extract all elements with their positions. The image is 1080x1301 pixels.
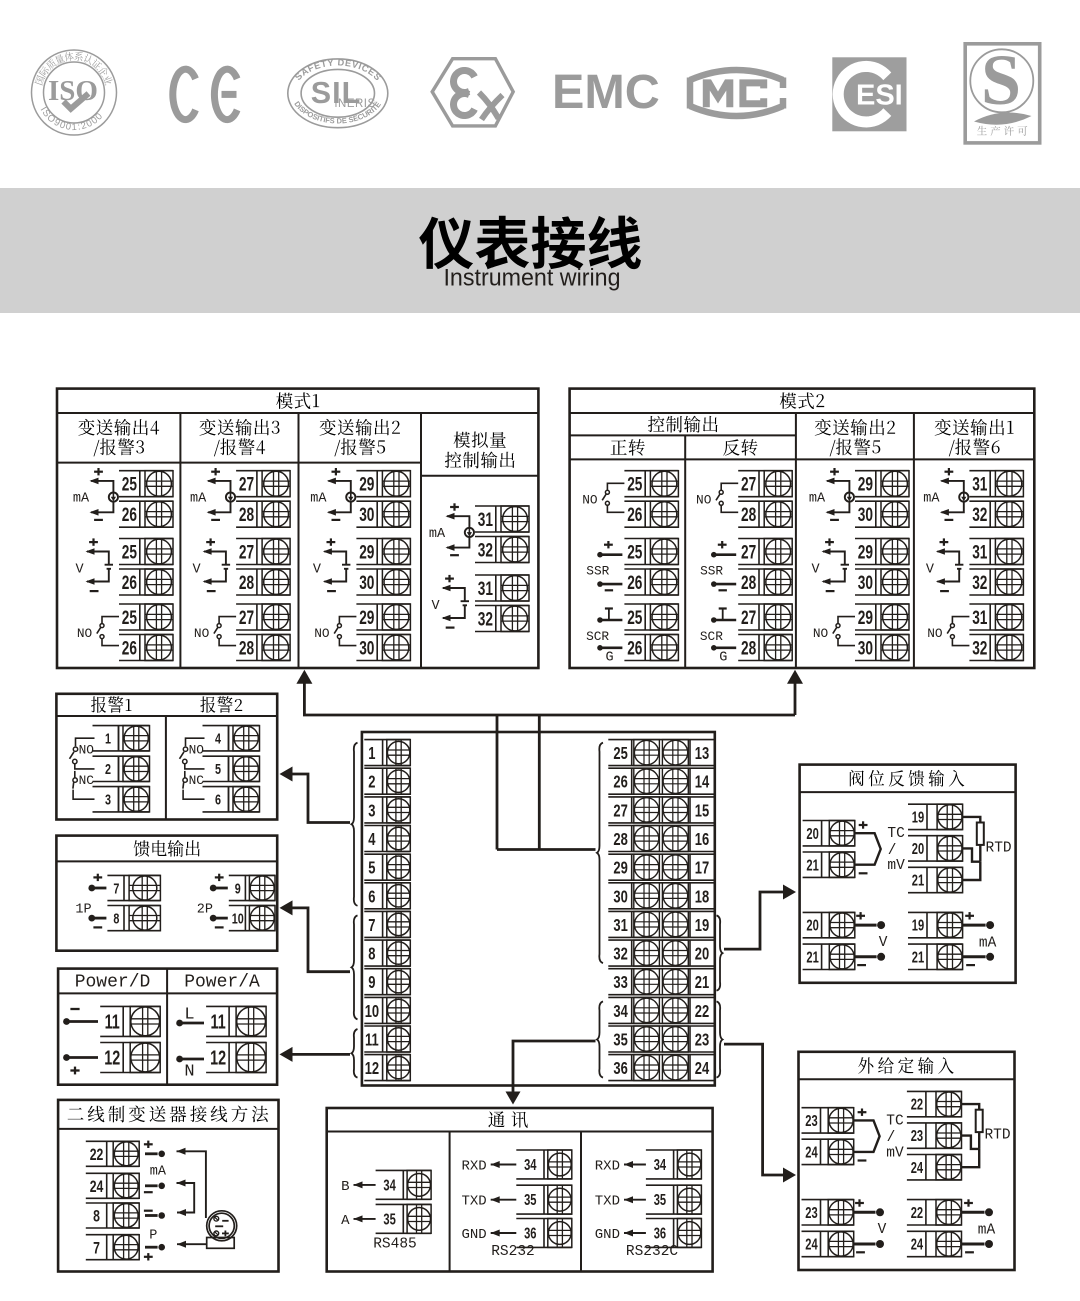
svg-text:SSR: SSR [586,564,609,579]
svg-text:4: 4 [215,730,222,747]
svg-text:35: 35 [654,1191,667,1208]
svg-text:31: 31 [972,473,987,495]
svg-text:25: 25 [627,541,642,563]
svg-text:V: V [926,563,935,578]
svg-text:20: 20 [806,825,818,842]
svg-text:35: 35 [524,1191,537,1208]
svg-text:Power/D: Power/D [75,973,151,993]
svg-text:24: 24 [90,1178,104,1196]
svg-text:28: 28 [613,830,628,850]
svg-text:V: V [193,563,202,578]
svg-text:5: 5 [368,859,375,879]
svg-text:26: 26 [627,504,642,526]
svg-text:mV: mV [886,1145,904,1161]
svg-text:25: 25 [122,473,137,495]
svg-text:4: 4 [368,830,375,850]
svg-text:RXD: RXD [461,1159,486,1175]
svg-text:21: 21 [806,857,819,874]
svg-text:RTD: RTD [986,840,1012,856]
svg-text:Instrument wiring: Instrument wiring [443,264,620,292]
svg-text:30: 30 [359,572,374,594]
svg-text:8: 8 [113,910,119,927]
svg-text:25: 25 [122,607,137,629]
svg-text:29: 29 [858,607,873,629]
svg-text:13: 13 [695,744,710,764]
svg-text:RS232C: RS232C [626,1244,679,1260]
svg-text:23: 23 [911,1127,924,1144]
svg-text:27: 27 [239,541,254,563]
svg-text:15: 15 [695,801,710,821]
svg-text:11: 11 [105,1010,120,1033]
svg-text:25: 25 [613,744,628,764]
svg-text:34: 34 [383,1177,396,1194]
svg-text:mA: mA [923,492,940,507]
svg-text:32: 32 [972,572,987,594]
svg-text:26: 26 [122,572,137,594]
svg-text:22: 22 [911,1204,923,1221]
svg-text:31: 31 [972,541,987,563]
svg-text:28: 28 [239,637,254,659]
svg-text:3: 3 [368,801,375,821]
svg-text:14: 14 [695,773,710,793]
svg-text:31: 31 [613,916,628,936]
svg-text:G: G [605,651,613,666]
svg-text:21: 21 [912,872,925,889]
svg-text:mA: mA [310,492,327,507]
svg-text:9: 9 [368,973,375,993]
svg-text:GND: GND [595,1227,620,1243]
svg-text:20: 20 [806,917,818,934]
svg-text:27: 27 [613,801,628,821]
svg-text:NO: NO [582,493,598,508]
svg-text:19: 19 [912,809,924,826]
svg-text:EMC: EMC [552,65,660,119]
svg-text:mA: mA [73,492,90,507]
svg-text:26: 26 [122,637,137,659]
svg-text:mA: mA [979,936,997,952]
svg-text:RS232: RS232 [491,1244,535,1260]
svg-text:27: 27 [741,607,756,629]
svg-text:28: 28 [741,572,756,594]
svg-text:A: A [341,1213,350,1229]
svg-text:2: 2 [368,773,375,793]
svg-text:24: 24 [911,1236,924,1253]
svg-text:28: 28 [741,504,756,526]
svg-text:32: 32 [478,608,493,630]
svg-text:1: 1 [368,744,375,764]
svg-text:V: V [879,935,888,951]
svg-text:32: 32 [972,637,987,659]
svg-text:8: 8 [93,1208,100,1226]
svg-text:16: 16 [695,830,710,850]
svg-text:19: 19 [695,916,710,936]
svg-text:29: 29 [858,473,873,495]
svg-text:B: B [341,1179,349,1195]
svg-text:SSR: SSR [700,564,723,579]
svg-text:28: 28 [239,572,254,594]
svg-text:36: 36 [524,1225,537,1242]
svg-text:Power/A: Power/A [184,973,260,993]
svg-text:V: V [431,599,440,614]
svg-text:20: 20 [695,945,710,965]
svg-text:26: 26 [627,637,642,659]
svg-text:7: 7 [93,1240,100,1258]
svg-text:N: N [184,1063,194,1082]
svg-text:RXD: RXD [595,1159,620,1175]
svg-text:35: 35 [383,1211,396,1228]
svg-text:36: 36 [613,1059,628,1079]
svg-text:mA: mA [190,492,207,507]
svg-text:NO: NO [79,743,95,758]
svg-text:20: 20 [912,840,924,857]
svg-text:V: V [878,1222,887,1238]
svg-text:23: 23 [805,1112,818,1129]
svg-text:NO: NO [813,626,829,641]
svg-text:S: S [981,40,1021,120]
svg-text:/: / [888,843,897,859]
svg-text:31: 31 [972,607,987,629]
svg-text:GND: GND [461,1227,486,1243]
svg-text:RS485: RS485 [373,1237,417,1253]
svg-text:ISO: ISO [48,75,98,107]
svg-text:24: 24 [805,1144,818,1161]
svg-text:26: 26 [613,773,628,793]
svg-text:2P: 2P [197,903,213,918]
svg-text:29: 29 [858,541,873,563]
svg-text:31: 31 [478,578,493,600]
svg-text:18: 18 [695,887,710,907]
svg-text:22: 22 [90,1146,104,1164]
svg-text:29: 29 [359,541,374,563]
svg-text:12: 12 [365,1059,380,1079]
svg-text:30: 30 [359,637,374,659]
svg-text:19: 19 [912,917,924,934]
svg-text:8: 8 [368,945,375,965]
svg-text:NO: NO [77,626,93,641]
svg-text:27: 27 [741,473,756,495]
svg-text:30: 30 [858,504,873,526]
svg-text:7: 7 [113,880,119,897]
svg-text:TXD: TXD [461,1194,486,1210]
svg-text:2: 2 [105,760,111,777]
svg-text:P: P [149,1229,157,1244]
svg-text:27: 27 [239,473,254,495]
svg-text:11: 11 [210,1010,225,1033]
svg-text:6: 6 [215,791,221,808]
svg-text:NC: NC [79,773,95,788]
svg-text:34: 34 [654,1156,667,1173]
svg-text:30: 30 [858,572,873,594]
svg-text:NO: NO [194,626,210,641]
svg-text:V: V [811,563,820,578]
svg-text:10: 10 [365,1002,380,1022]
svg-text:33: 33 [613,973,628,993]
svg-text:5: 5 [215,760,221,777]
svg-text:34: 34 [613,1002,628,1022]
svg-text:17: 17 [695,859,710,879]
svg-text:32: 32 [613,945,628,965]
svg-text:23: 23 [695,1031,710,1051]
svg-text:27: 27 [239,607,254,629]
svg-text:24: 24 [911,1159,924,1176]
svg-text:32: 32 [972,504,987,526]
svg-text:29: 29 [613,859,628,879]
svg-text:22: 22 [695,1002,710,1022]
svg-text:28: 28 [741,637,756,659]
svg-text:NO: NO [696,493,712,508]
svg-text:29: 29 [359,607,374,629]
svg-text:25: 25 [122,541,137,563]
svg-text:mA: mA [809,492,826,507]
svg-text:30: 30 [858,637,873,659]
svg-text:mA: mA [978,1223,996,1239]
svg-text:SCR: SCR [700,629,723,644]
svg-text:34: 34 [524,1156,537,1173]
svg-text:9: 9 [235,880,241,897]
svg-text:NO: NO [189,743,205,758]
svg-text:SCR: SCR [586,629,609,644]
svg-text:3: 3 [105,791,111,808]
svg-text:31: 31 [478,509,493,531]
svg-text:mV: mV [887,858,905,874]
svg-text:V: V [313,563,322,578]
svg-text:TC: TC [887,826,905,842]
svg-text:24: 24 [805,1236,818,1253]
svg-text:7: 7 [368,916,375,936]
svg-text:22: 22 [911,1096,923,1113]
svg-text:TXD: TXD [595,1194,620,1210]
svg-text:26: 26 [122,504,137,526]
svg-text:/: / [887,1130,896,1146]
svg-text:mA: mA [429,527,446,542]
svg-text:26: 26 [627,572,642,594]
svg-text:NO: NO [314,626,330,641]
svg-text:35: 35 [613,1031,628,1051]
svg-text:30: 30 [359,504,374,526]
svg-text:28: 28 [239,504,254,526]
svg-text:21: 21 [695,973,710,993]
svg-text:32: 32 [478,539,493,561]
svg-text:NC: NC [189,773,205,788]
svg-text:ESI: ESI [856,80,903,112]
svg-text:G: G [719,651,727,666]
svg-text:29: 29 [359,473,374,495]
svg-text:24: 24 [695,1059,710,1079]
svg-text:1: 1 [105,730,111,747]
svg-text:36: 36 [654,1225,667,1242]
svg-text:RTD: RTD [984,1128,1010,1144]
svg-text:mA: mA [150,1164,167,1179]
svg-text:TC: TC [886,1113,904,1129]
svg-text:30: 30 [613,887,628,907]
svg-text:10: 10 [232,910,244,927]
svg-text:12: 12 [210,1046,226,1069]
svg-text:21: 21 [806,949,819,966]
svg-text:6: 6 [368,887,375,907]
svg-text:23: 23 [805,1204,818,1221]
svg-text:25: 25 [627,607,642,629]
svg-text:V: V [75,563,84,578]
svg-text:1P: 1P [75,903,91,918]
svg-text:11: 11 [365,1031,379,1051]
svg-text:NO: NO [927,626,943,641]
svg-text:27: 27 [741,541,756,563]
svg-text:12: 12 [104,1046,120,1069]
svg-text:21: 21 [912,949,925,966]
svg-text:25: 25 [627,473,642,495]
